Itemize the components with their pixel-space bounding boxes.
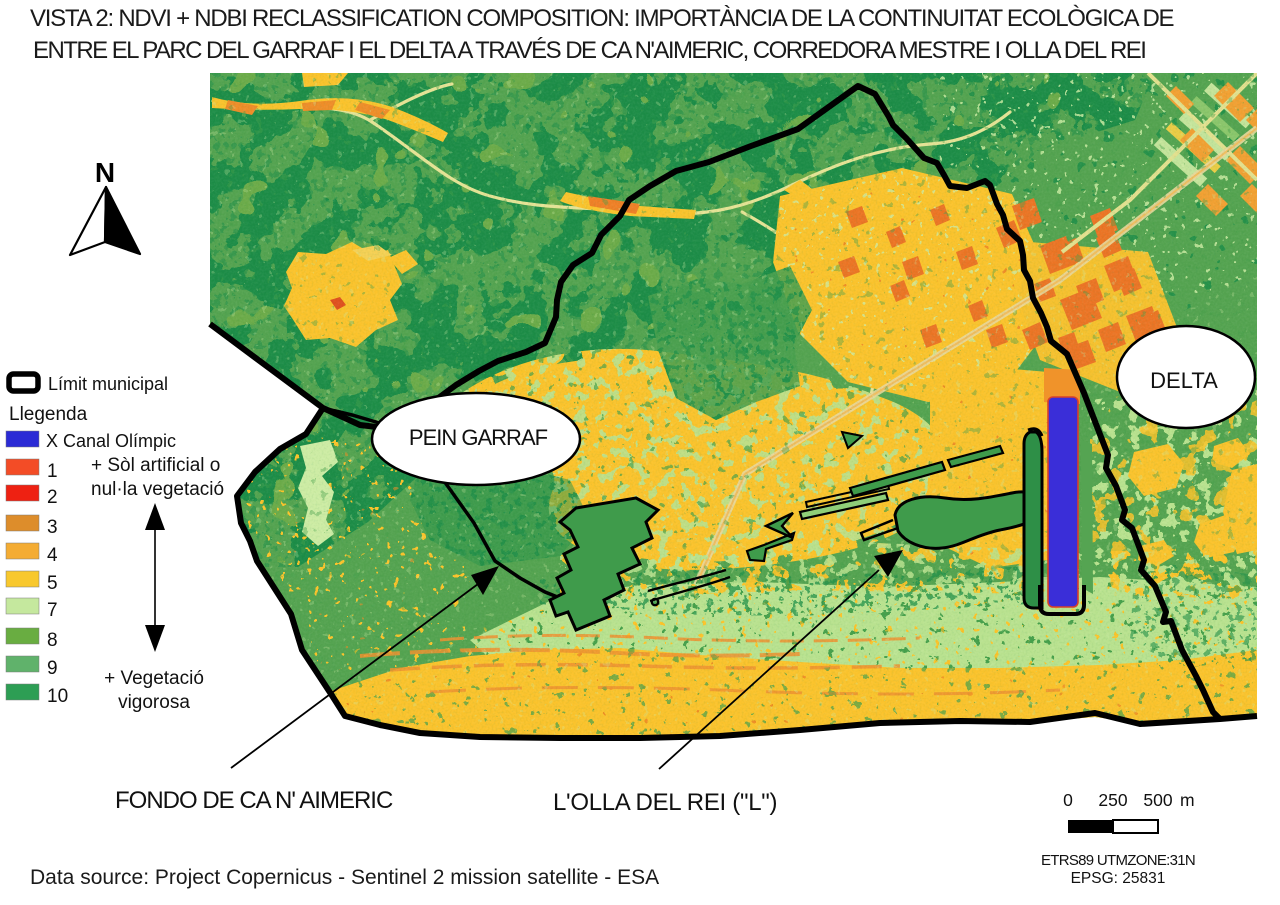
svg-text:250: 250 bbox=[1098, 790, 1127, 810]
svg-text:+ Vegetació: + Vegetació bbox=[104, 668, 204, 689]
svg-text:4: 4 bbox=[47, 545, 58, 566]
svg-text:DELTA: DELTA bbox=[1150, 368, 1218, 393]
svg-text:500: 500 bbox=[1143, 790, 1172, 810]
svg-text:3: 3 bbox=[47, 517, 58, 538]
svg-text:vigorosa: vigorosa bbox=[118, 692, 190, 713]
svg-text:ENTRE EL PARC DEL GARRAF I EL: ENTRE EL PARC DEL GARRAF I EL DELTA A TR… bbox=[33, 37, 1145, 64]
svg-text:10: 10 bbox=[47, 686, 68, 707]
svg-text:1: 1 bbox=[47, 461, 58, 482]
svg-text:8: 8 bbox=[47, 630, 58, 651]
svg-text:Data source: Project Copernicu: Data source: Project Copernicus - Sentin… bbox=[30, 866, 659, 889]
svg-text:7: 7 bbox=[47, 600, 58, 621]
svg-text:EPSG: 25831: EPSG: 25831 bbox=[1071, 870, 1166, 887]
svg-text:X Canal Olímpic: X Canal Olímpic bbox=[46, 431, 176, 451]
svg-text:0: 0 bbox=[1063, 790, 1073, 810]
svg-text:m: m bbox=[1180, 790, 1195, 810]
svg-text:ETRS89 UTMZONE:31N: ETRS89 UTMZONE:31N bbox=[1041, 852, 1195, 869]
svg-text:PEIN GARRAF: PEIN GARRAF bbox=[409, 425, 548, 450]
svg-text:FONDO DE CA N' AIMERIC: FONDO DE CA N' AIMERIC bbox=[115, 787, 393, 814]
svg-text:Límit municipal: Límit municipal bbox=[48, 374, 168, 394]
svg-text:VISTA 2: NDVI + NDBI RECLASSIF: VISTA 2: NDVI + NDBI RECLASSIFICATION CO… bbox=[30, 5, 1174, 32]
svg-text:Llegenda: Llegenda bbox=[9, 404, 88, 425]
svg-text:N: N bbox=[95, 157, 115, 188]
svg-text:9: 9 bbox=[47, 658, 58, 679]
svg-text:5: 5 bbox=[47, 573, 58, 594]
svg-text:2: 2 bbox=[47, 487, 58, 508]
svg-text:nul·la vegetació: nul·la vegetació bbox=[91, 479, 224, 500]
svg-text:+ Sòl artificial o: + Sòl artificial o bbox=[91, 455, 220, 476]
svg-text:L'OLLA DEL REI ("L"): L'OLLA DEL REI ("L") bbox=[553, 789, 777, 816]
